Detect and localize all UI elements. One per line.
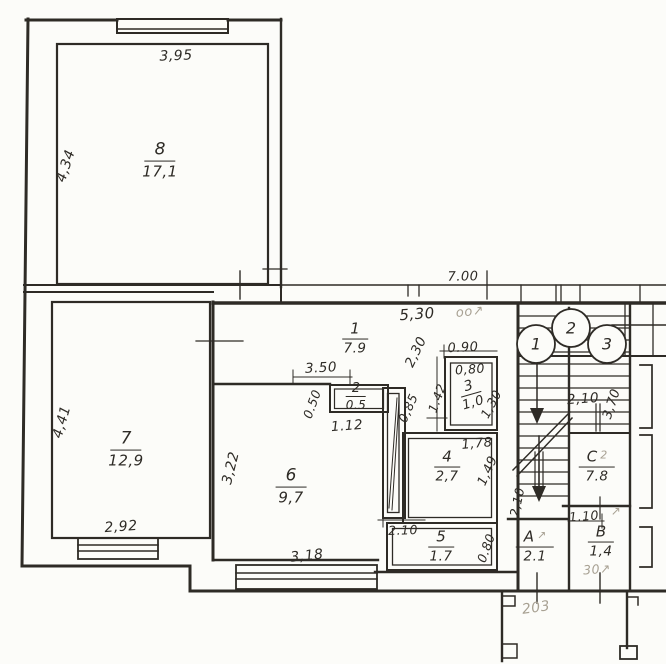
room-label-4: 4 2,7 (434, 450, 460, 485)
room-label-B: B 1,4 (588, 525, 614, 560)
room-2-area: 0.5 (346, 397, 367, 412)
room-C-number: C 2 (579, 450, 615, 468)
room-5-number: 5 (428, 530, 454, 548)
room-B-area: 1,4 (590, 542, 613, 559)
room-4-area: 2,7 (436, 467, 459, 484)
room-label-2: 2 0.5 (346, 382, 367, 412)
dim-wc-top: 0.90 (447, 340, 479, 357)
dim-room8-width: 3,95 (159, 47, 193, 64)
room-C-letter: C (587, 450, 597, 466)
dim-stairs-width: 2,10 (566, 390, 599, 408)
dim-roomB-width: 1.10 (569, 507, 600, 524)
dim-top-total: 7.00 (447, 269, 478, 285)
dim-hall-width: 5,30 (399, 304, 436, 324)
dim-wc-inner: 0,80 (455, 360, 486, 377)
pencil-note-roomB-code: 30↗ (583, 561, 612, 578)
room-label-C: C 2 7.8 (579, 450, 615, 485)
entry-marker-3: 3 (602, 335, 612, 354)
room-label-5: 5 1.7 (428, 530, 454, 565)
room-1-area: 7.9 (344, 339, 367, 356)
room-7-area: 12,9 (108, 450, 143, 469)
room-6-area: 9,7 (278, 487, 303, 506)
room-label-8: 8 17,1 (142, 142, 177, 181)
dim-closet2-span: 3.50 (305, 359, 338, 377)
room-C-area: 7.8 (586, 467, 609, 484)
room-C-pencil-mark: 2 (600, 450, 607, 461)
dim-closet2-width: 1.12 (330, 417, 363, 435)
room-5-area: 1.7 (430, 547, 453, 564)
room-2-number: 2 (346, 382, 366, 397)
floor-plan: 8 17,1 7 12,9 6 9,7 1 7.9 2 0.5 3 1,0 4 … (0, 0, 666, 664)
room-label-1: 1 7.9 (342, 322, 368, 357)
room-A-letter: A (524, 530, 534, 546)
pencil-note-roomB-arrow: ↗ (611, 504, 622, 518)
dim-room7-width: 2,92 (104, 518, 138, 536)
entry-marker-2: 2 (566, 319, 576, 338)
room-8-area: 17,1 (142, 161, 177, 180)
room-4-number: 4 (434, 450, 460, 468)
room-B-number: B (588, 525, 614, 543)
room-A-pencil-mark: ↗ (537, 530, 546, 541)
entry-marker-1: 1 (531, 335, 541, 354)
room-label-6: 6 9,7 (276, 468, 307, 507)
dim-closet-height: 2.10 (388, 522, 418, 538)
room-label-7: 7 12,9 (108, 431, 143, 470)
dim-bath-width: 1,78 (461, 435, 493, 453)
room-A-number: A ↗ (516, 530, 554, 548)
room-label-A: A ↗ 2.1 (516, 530, 554, 565)
room-6-number: 6 (276, 468, 307, 488)
room-A-area: 2.1 (524, 547, 547, 564)
room-8-number: 8 (145, 142, 176, 162)
adjacent-wall-brackets (640, 365, 652, 567)
pencil-note-hall: оо↗ (455, 303, 485, 321)
room-7-number: 7 (111, 431, 142, 451)
room-1-number: 1 (342, 322, 368, 340)
